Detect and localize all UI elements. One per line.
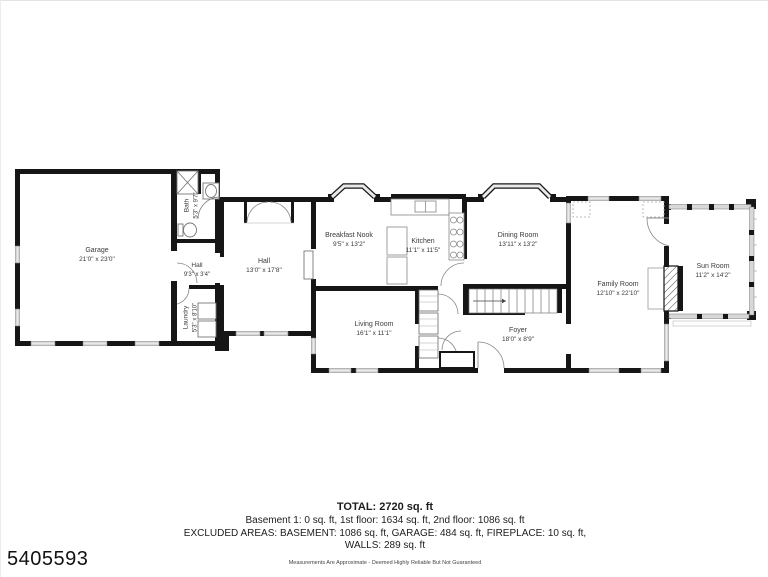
foyer-closet-door-arc [438, 294, 458, 314]
area-summary: TOTAL: 2720 sq. ft Basement 1: 0 sq. ft,… [1, 501, 768, 566]
shower-icon [177, 171, 198, 194]
disclaimer-text: Measurements Are Approximate - Deemed Hi… [1, 560, 768, 566]
vestibule-door-arc [441, 263, 464, 286]
washer-dryer-icon [198, 303, 216, 337]
overhead-dashed-boxes [573, 202, 664, 217]
toilet-icon [178, 223, 197, 237]
hall-closet-door-arc [247, 202, 268, 222]
listing-number: 5405593 [7, 548, 88, 571]
stairs-icon [469, 289, 557, 313]
chimney-box [304, 251, 313, 279]
bay-window-breakfast-nook [332, 186, 375, 197]
kitchen-counter-sink-icon [391, 199, 449, 215]
floor-plan-page: Garage 21'0" x 23'0" Bath 5'3" x 9'7" Ha… [0, 0, 768, 577]
sun-room-step [673, 321, 751, 326]
fireplace-icon [648, 266, 683, 311]
hall-closet-door-arc [270, 202, 291, 222]
stove-icon [449, 213, 464, 260]
walls-area: WALLS: 289 sq. ft [1, 540, 768, 551]
sink-icon [203, 183, 219, 199]
bay-window-dining [483, 186, 550, 197]
foyer-closet-door-arc [442, 331, 461, 350]
excluded-areas: EXCLUDED AREAS: BASEMENT: 1086 sq. ft, G… [1, 528, 768, 539]
garage-hall-door-arc [177, 263, 197, 283]
refrigerator-cabinets-icon [387, 227, 407, 284]
kitchen-fixtures [387, 199, 464, 284]
floor-areas: Basement 1: 0 sq. ft, 1st floor: 1634 sq… [1, 515, 768, 526]
floor-plan-drawing [1, 1, 768, 577]
laundry-door-arc [177, 288, 189, 304]
total-area: TOTAL: 2720 sq. ft [1, 501, 768, 513]
front-door-arc [478, 342, 504, 368]
